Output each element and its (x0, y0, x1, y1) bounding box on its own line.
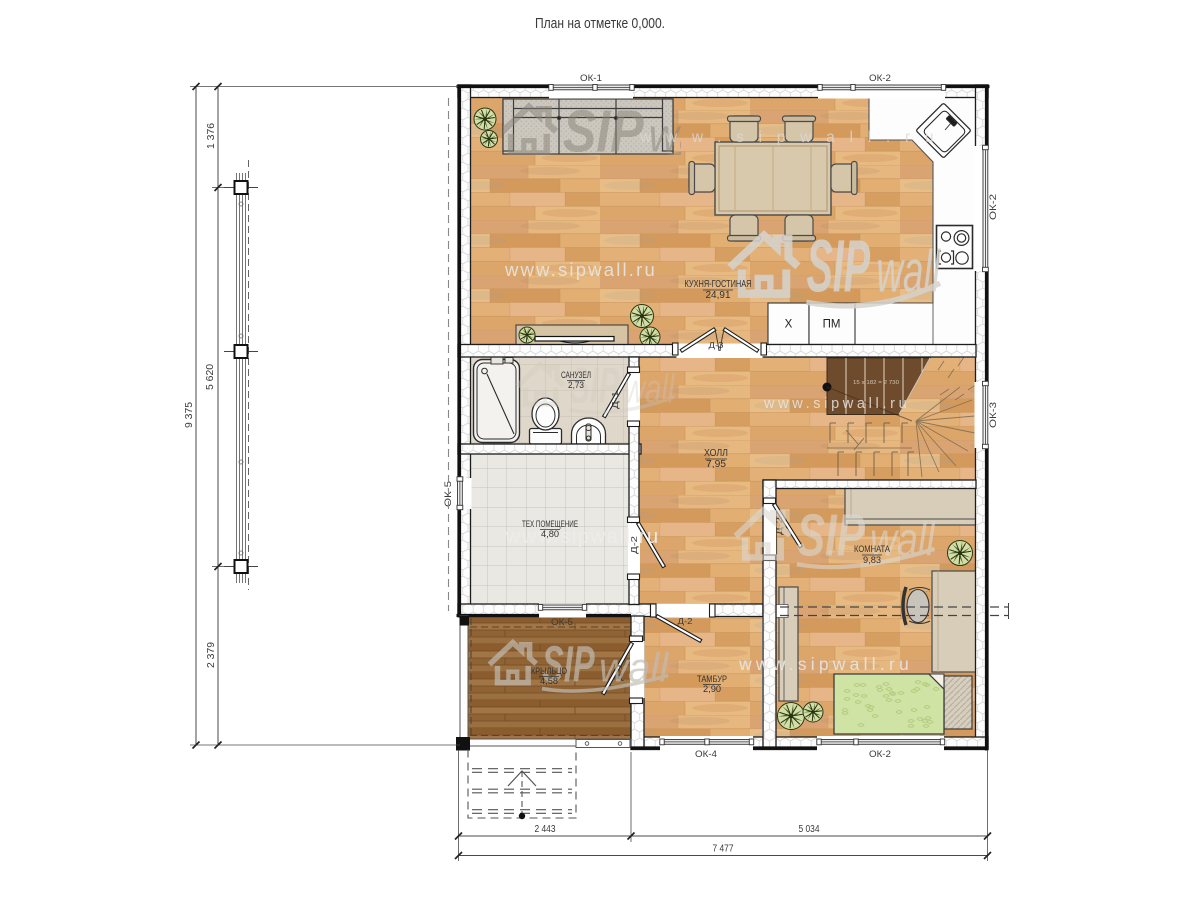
svg-text:САНУЗЕЛ: САНУЗЕЛ (561, 370, 591, 380)
svg-text:7,95: 7,95 (706, 459, 726, 470)
svg-text:24,91: 24,91 (706, 290, 731, 301)
svg-text:ОК-2: ОК-2 (869, 749, 891, 760)
svg-text:5 034: 5 034 (799, 824, 820, 835)
svg-text:КУХНЯ-ГОСТИНАЯ: КУХНЯ-ГОСТИНАЯ (685, 279, 752, 290)
svg-text:9 375: 9 375 (184, 402, 195, 428)
svg-text:www.sipwall.ru: www.sipwall.ru (639, 129, 948, 146)
svg-text:wall: wall (599, 644, 669, 690)
svg-text:www.sipwall.ru: www.sipwall.ru (738, 654, 913, 674)
svg-text:ОК-1: ОК-1 (580, 73, 602, 84)
svg-text:4,80: 4,80 (541, 529, 559, 540)
svg-text:План на отметке 0,000.: План на отметке 0,000. (535, 15, 665, 32)
svg-text:ПМ: ПМ (823, 319, 841, 331)
svg-text:ОК-2: ОК-2 (869, 73, 891, 84)
svg-text:SIP: SIP (563, 98, 644, 165)
svg-text:2 443: 2 443 (535, 824, 556, 835)
svg-text:Д-2: Д-2 (678, 616, 693, 626)
svg-text:2 379: 2 379 (206, 642, 217, 668)
svg-text:SIP: SIP (797, 502, 865, 569)
svg-text:Х: Х (785, 319, 793, 331)
svg-text:www.sipwall.ru: www.sipwall.ru (763, 396, 910, 412)
svg-text:ОК-4: ОК-4 (695, 749, 717, 760)
svg-text:ОК-5: ОК-5 (551, 617, 573, 628)
svg-text:www.sipwall.ru: www.sipwall.ru (504, 259, 657, 280)
svg-text:ХОЛЛ: ХОЛЛ (704, 448, 728, 459)
svg-text:2,90: 2,90 (703, 684, 721, 695)
svg-text:ОК-3: ОК-3 (988, 402, 999, 428)
svg-text:Д-3: Д-3 (709, 340, 724, 350)
svg-text:wall: wall (876, 238, 941, 305)
svg-text:ОК-2: ОК-2 (988, 194, 999, 220)
svg-text:2,73: 2,73 (568, 380, 584, 390)
svg-text:9,83: 9,83 (863, 555, 881, 566)
svg-text:15 х 182 = 2 730: 15 х 182 = 2 730 (853, 380, 899, 386)
svg-text:SIP: SIP (806, 225, 870, 308)
svg-text:4,58: 4,58 (540, 676, 558, 687)
svg-text:wall: wall (624, 366, 675, 412)
svg-text:7 477: 7 477 (713, 844, 734, 855)
svg-text:КОМНАТА: КОМНАТА (854, 544, 891, 555)
svg-text:5 620: 5 620 (205, 364, 216, 390)
svg-text:1 376: 1 376 (206, 123, 217, 149)
